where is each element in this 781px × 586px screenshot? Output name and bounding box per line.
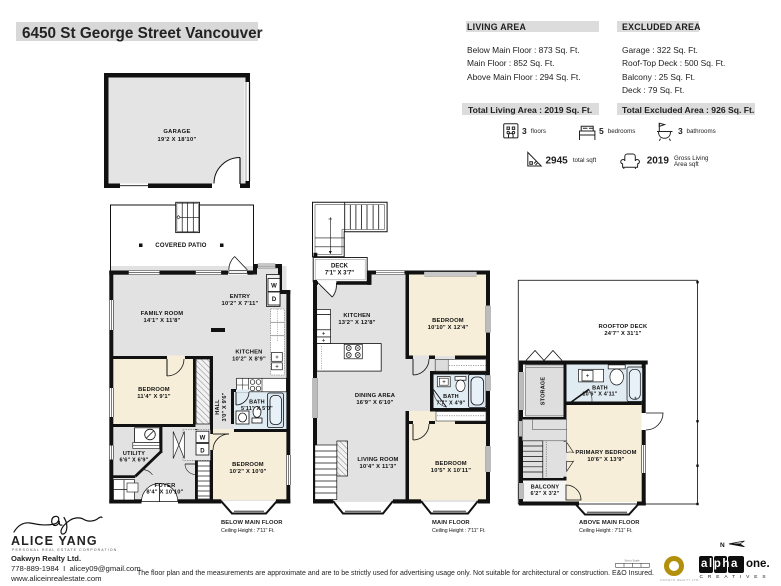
svg-text:14'1" X 11'8": 14'1" X 11'8"	[144, 318, 181, 324]
svg-text:FAMILY ROOM: FAMILY ROOM	[141, 311, 183, 317]
svg-text:11'4" X 9'1": 11'4" X 9'1"	[137, 394, 171, 400]
svg-text:BEDROOM: BEDROOM	[232, 462, 264, 468]
svg-text:10'2" X 10'0": 10'2" X 10'0"	[229, 469, 266, 475]
svg-text:3'0" X 9'6": 3'0" X 9'6"	[222, 392, 228, 421]
svg-text:16'9" X 6'10": 16'9" X 6'10"	[356, 400, 393, 406]
svg-text:BEDROOM: BEDROOM	[432, 318, 464, 324]
svg-text:7'1" X 3'7": 7'1" X 3'7"	[325, 271, 354, 277]
svg-text:N: N	[720, 542, 725, 549]
svg-text:BATH: BATH	[249, 400, 265, 406]
svg-text:10'5" X 10'11": 10'5" X 10'11"	[431, 468, 471, 474]
svg-text:10'2" X 8'9": 10'2" X 8'9"	[232, 357, 266, 363]
svg-text:W: W	[200, 436, 206, 442]
svg-text:5'11" X 5'0": 5'11" X 5'0"	[241, 406, 273, 412]
svg-text:GARAGE: GARAGE	[163, 129, 190, 135]
svg-text:10'4" X 11'3": 10'4" X 11'3"	[360, 464, 397, 470]
svg-text:D: D	[272, 297, 277, 303]
svg-text:BEDROOM: BEDROOM	[138, 387, 170, 393]
svg-text:6'6" X 6'9": 6'6" X 6'9"	[120, 458, 149, 464]
svg-text:COVERED PATIO: COVERED PATIO	[155, 243, 207, 249]
svg-text:DINING AREA: DINING AREA	[355, 393, 396, 399]
svg-text:10'2" X 7'11": 10'2" X 7'11"	[222, 301, 259, 307]
svg-text:13'2" X 12'8": 13'2" X 12'8"	[338, 320, 375, 326]
svg-text:7'7" X 4'9": 7'7" X 4'9"	[437, 401, 466, 407]
svg-text:STORAGE: STORAGE	[541, 377, 547, 406]
svg-text:10'10" X 12'4": 10'10" X 12'4"	[428, 325, 469, 331]
svg-text:UTILITY: UTILITY	[123, 451, 145, 457]
svg-text:ROOFTOP DECK: ROOFTOP DECK	[599, 324, 649, 330]
svg-text:BALCONY: BALCONY	[531, 485, 560, 491]
svg-text:KITCHEN: KITCHEN	[235, 350, 262, 356]
svg-text:HALL: HALL	[215, 399, 221, 415]
svg-text:Set to Scale: Set to Scale	[624, 559, 640, 563]
svg-text:8'4" X 10'10": 8'4" X 10'10"	[146, 490, 183, 496]
svg-text:10'6" X 13'9": 10'6" X 13'9"	[587, 457, 624, 463]
svg-text:PRIMARY BEDROOM: PRIMARY BEDROOM	[575, 450, 636, 456]
svg-text:D: D	[200, 449, 205, 455]
svg-text:6'2" X 3'2": 6'2" X 3'2"	[531, 491, 560, 497]
svg-text:FOYER: FOYER	[155, 483, 177, 489]
svg-text:DECK: DECK	[331, 264, 349, 270]
svg-text:LIVING ROOM: LIVING ROOM	[357, 457, 398, 463]
svg-text:19'2 X 18'10": 19'2 X 18'10"	[157, 137, 196, 143]
svg-text:24'7" X 31'1": 24'7" X 31'1"	[604, 331, 641, 337]
svg-text:10'6" X 4'11": 10'6" X 4'11"	[582, 392, 617, 398]
svg-text:KITCHEN: KITCHEN	[343, 313, 370, 319]
svg-text:W: W	[271, 284, 277, 290]
svg-text:BEDROOM: BEDROOM	[435, 461, 467, 467]
svg-text:ENTRY: ENTRY	[230, 294, 250, 300]
svg-text:BATH: BATH	[443, 394, 459, 400]
